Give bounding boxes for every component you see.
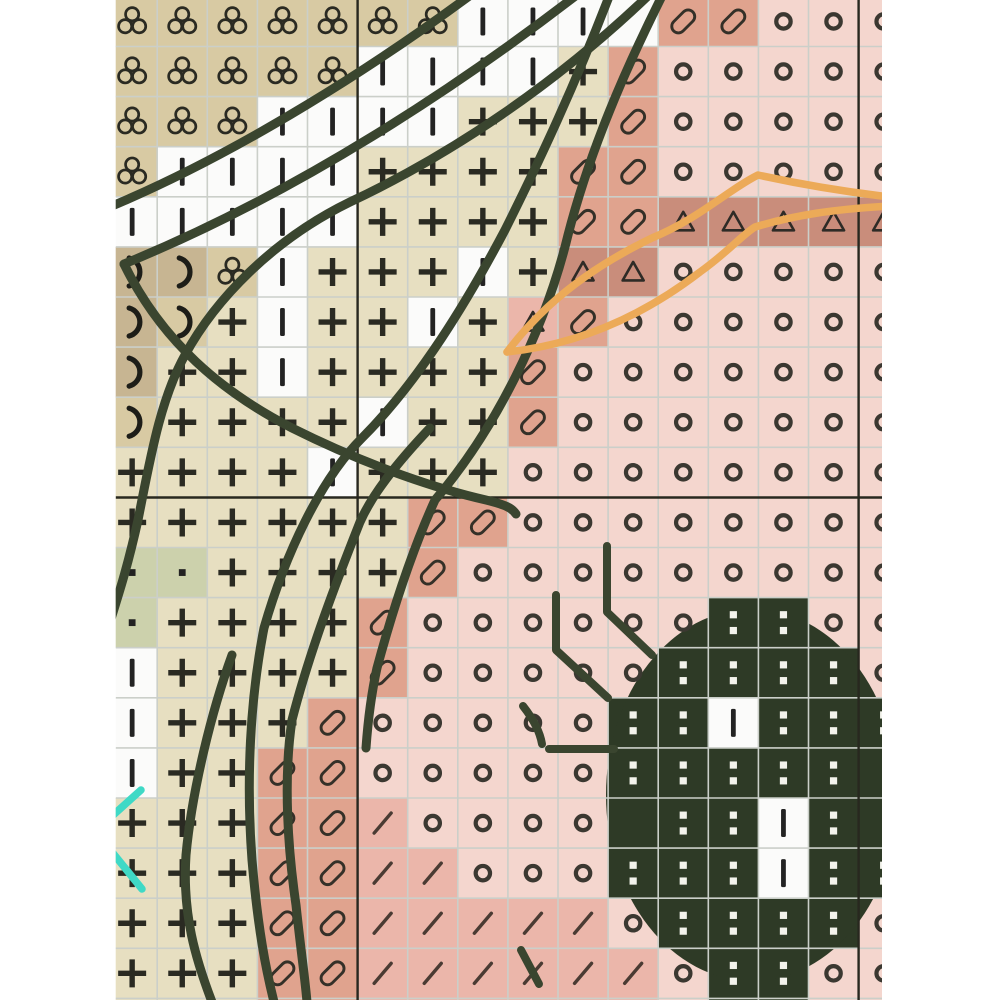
stitch-cell: [708, 548, 758, 598]
stitch-cell: [558, 397, 608, 447]
stitch-cell: [758, 347, 808, 397]
bar-mark: [731, 709, 736, 737]
stitch-cell: [758, 247, 808, 297]
stitch-cell: [308, 898, 358, 948]
bar-mark: [130, 759, 135, 787]
stitch-symbol-w: [781, 859, 786, 887]
colon-dot-top: [680, 761, 687, 768]
bar-mark: [130, 709, 135, 737]
stitch-cell: [558, 548, 608, 598]
colon-dot-bottom: [680, 677, 687, 684]
stitch-cell: [708, 0, 758, 46]
colon-dot-top: [830, 812, 837, 819]
stitch-cell: [758, 548, 808, 598]
stitch-cell: [658, 497, 708, 547]
colon-dot-bottom: [780, 978, 787, 985]
colon-dot-bottom: [730, 877, 737, 884]
colon-dot-bottom: [830, 727, 837, 734]
stitch-cell: [358, 748, 408, 798]
stitch-cell: [558, 848, 608, 898]
colon-dot-bottom: [780, 777, 787, 784]
stitch-cell: [408, 698, 458, 748]
colon-dot-bottom: [680, 727, 687, 734]
stitch-cell: [458, 848, 508, 898]
stitch-cell: [608, 397, 658, 447]
bar-mark: [430, 308, 435, 336]
stitch-cell: [157, 247, 207, 297]
stitch-cell: [257, 748, 307, 798]
stitch-cell: [708, 497, 758, 547]
colon-dot-bottom: [730, 777, 737, 784]
stitch-cell: [608, 548, 658, 598]
colon-dot-bottom: [780, 727, 787, 734]
colon-dot-bottom: [780, 627, 787, 634]
stitch-symbol-b: [430, 58, 435, 86]
colon-dot-top: [630, 862, 637, 869]
stitch-cell: [758, 497, 808, 547]
bar-mark: [480, 7, 485, 35]
stitch-symbol-b: [480, 7, 485, 35]
stitch-symbol-b: [230, 158, 235, 186]
stitch-symbol-b: [130, 659, 135, 687]
bar-mark: [280, 208, 285, 236]
colon-dot-top: [780, 661, 787, 668]
stitch-cell: [658, 147, 708, 197]
colon-dot-top: [780, 711, 787, 718]
bar-mark: [230, 158, 235, 186]
bar-mark: [280, 308, 285, 336]
stitch-cell: [708, 297, 758, 347]
stitch-cell: [508, 397, 558, 447]
stitch-cell: [508, 548, 558, 598]
stitch-cell: [608, 497, 658, 547]
stitch-cell: [658, 548, 708, 598]
stitch-symbol-b: [280, 258, 285, 286]
stitch-cell: [458, 598, 508, 648]
stitch-cell: [408, 648, 458, 698]
colon-dot-top: [680, 711, 687, 718]
bar-mark: [330, 108, 335, 136]
stitch-cell: [658, 47, 708, 97]
colon-dot-top: [730, 962, 737, 969]
colon-dot-top: [780, 962, 787, 969]
stitch-cell: [708, 447, 758, 497]
colon-dot-top: [730, 761, 737, 768]
stitch-cell: [809, 347, 859, 397]
stitch-cell: [257, 798, 307, 848]
stitch-symbol-b: [180, 208, 185, 236]
pattern-page: [0, 0, 1000, 1000]
pattern-grid: [107, 0, 909, 1000]
stitch-cell: [458, 798, 508, 848]
stitch-cell: [508, 447, 558, 497]
stitch-symbol-w: [781, 809, 786, 837]
stitch-cell: [558, 447, 608, 497]
stitch-cell: [558, 497, 608, 547]
stitch-cell: [758, 47, 808, 97]
colon-dot-bottom: [730, 677, 737, 684]
colon-dot-top: [630, 711, 637, 718]
colon-dot-top: [830, 711, 837, 718]
stitch-symbol-b: [280, 358, 285, 386]
colon-dot-top: [730, 812, 737, 819]
colon-dot-top: [680, 812, 687, 819]
stitch-cell: [809, 397, 859, 447]
stitch-cell: [758, 97, 808, 147]
stitch-cell: [558, 598, 608, 648]
stitch-cell: [508, 598, 558, 648]
stitch-cell: [308, 948, 358, 998]
stitch-cell: [758, 447, 808, 497]
colon-dot-bottom: [730, 928, 737, 935]
stitch-cell: [458, 548, 508, 598]
colon-dot-top: [730, 611, 737, 618]
bar-mark: [130, 659, 135, 687]
stitch-symbol-d: [179, 569, 186, 576]
stitch-cell: [809, 0, 859, 46]
stitch-cell: [708, 47, 758, 97]
stitch-cell: [458, 648, 508, 698]
colon-dot-bottom: [680, 777, 687, 784]
stitch-cell: [809, 297, 859, 347]
bar-mark: [130, 208, 135, 236]
colon-dot-top: [680, 661, 687, 668]
stitch-cell: [508, 798, 558, 848]
colon-dot-bottom: [680, 877, 687, 884]
colon-dot-top: [680, 862, 687, 869]
stitch-symbol-b: [280, 208, 285, 236]
stitch-cell: [558, 798, 608, 848]
stitch-symbol-b: [280, 308, 285, 336]
colon-dot-bottom: [730, 827, 737, 834]
stitch-cell: [658, 397, 708, 447]
colon-dot-bottom: [830, 827, 837, 834]
stitch-cell: [608, 147, 658, 197]
colon-dot-bottom: [830, 677, 837, 684]
colon-dot-top: [830, 912, 837, 919]
stitch-cell: [809, 497, 859, 547]
beetle-body: [606, 609, 898, 981]
stitch-cell: [508, 497, 558, 547]
stitch-cell: [257, 848, 307, 898]
stitch-cell: [809, 197, 859, 247]
bar-mark: [781, 859, 786, 887]
stitch-cell: [308, 698, 358, 748]
colon-dot-bottom: [780, 928, 787, 935]
stitch-cell: [508, 848, 558, 898]
colon-dot-top: [780, 912, 787, 919]
stitch-cell: [708, 347, 758, 397]
stitch-symbol-b: [430, 108, 435, 136]
bar-mark: [430, 58, 435, 86]
stitch-cell: [458, 698, 508, 748]
colon-dot-top: [730, 912, 737, 919]
dot-mark: [129, 619, 136, 626]
stitch-cell: [558, 347, 608, 397]
colon-dot-bottom: [730, 978, 737, 985]
colon-dot-top: [830, 661, 837, 668]
stitch-cell: [658, 297, 708, 347]
stitch-cell: [809, 97, 859, 147]
stitch-symbol-b: [280, 158, 285, 186]
colon-dot-top: [680, 912, 687, 919]
colon-dot-bottom: [680, 827, 687, 834]
bar-mark: [180, 208, 185, 236]
stitch-cell: [508, 748, 558, 798]
colon-dot-bottom: [680, 928, 687, 935]
colon-dot-top: [780, 611, 787, 618]
bar-mark: [280, 258, 285, 286]
stitch-cell: [658, 97, 708, 147]
colon-dot-top: [630, 761, 637, 768]
colon-dot-bottom: [730, 627, 737, 634]
bar-mark: [430, 108, 435, 136]
stitch-cell: [658, 447, 708, 497]
stitch-cell: [508, 648, 558, 698]
colon-dot-top: [780, 761, 787, 768]
stitch-cell: [658, 347, 708, 397]
cross-stitch-chart: [0, 0, 1000, 1000]
dot-mark: [179, 569, 186, 576]
stitch-cell: [809, 447, 859, 497]
stitch-symbol-b: [531, 58, 536, 86]
stitch-cell: [809, 47, 859, 97]
colon-dot-top: [830, 761, 837, 768]
stitch-cell: [758, 0, 808, 46]
stitch-cell: [408, 598, 458, 648]
stitch-cell: [558, 698, 608, 748]
colon-dot-top: [730, 661, 737, 668]
colon-dot-bottom: [780, 677, 787, 684]
bar-mark: [280, 158, 285, 186]
stitch-cell: [608, 347, 658, 397]
bar-mark: [280, 358, 285, 386]
colon-dot-bottom: [830, 877, 837, 884]
colon-dot-bottom: [630, 877, 637, 884]
stitch-cell: [708, 397, 758, 447]
stitch-cell: [708, 97, 758, 147]
stitch-cell: [458, 748, 508, 798]
colon-dot-top: [830, 862, 837, 869]
stitch-cell: [308, 748, 358, 798]
stitch-cell: [308, 798, 358, 848]
stitch-cell: [758, 397, 808, 447]
stitch-cell: [308, 848, 358, 898]
stitch-symbol-d: [129, 619, 136, 626]
stitch-cell: [408, 748, 458, 798]
stitch-symbol-b: [130, 759, 135, 787]
stitch-cell: [809, 247, 859, 297]
colon-dot-bottom: [630, 727, 637, 734]
stitch-cell: [809, 548, 859, 598]
colon-dot-bottom: [830, 777, 837, 784]
stitch-symbol-b: [430, 308, 435, 336]
stitch-cell: [408, 798, 458, 848]
bar-mark: [781, 809, 786, 837]
stitch-cell: [758, 297, 808, 347]
colon-dot-bottom: [830, 928, 837, 935]
colon-dot-top: [730, 862, 737, 869]
stitch-symbol-b: [330, 108, 335, 136]
bar-mark: [531, 58, 536, 86]
colon-dot-bottom: [630, 777, 637, 784]
stitch-cell: [608, 447, 658, 497]
stitch-cell: [558, 748, 608, 798]
stitch-symbol-b: [130, 709, 135, 737]
stitch-cell: [708, 247, 758, 297]
stitch-symbol-w: [731, 709, 736, 737]
stitch-cell: [658, 0, 708, 46]
stitch-symbol-b: [581, 7, 586, 35]
bar-mark: [581, 7, 586, 35]
stitch-cell: [758, 147, 808, 197]
stitch-symbol-b: [130, 208, 135, 236]
